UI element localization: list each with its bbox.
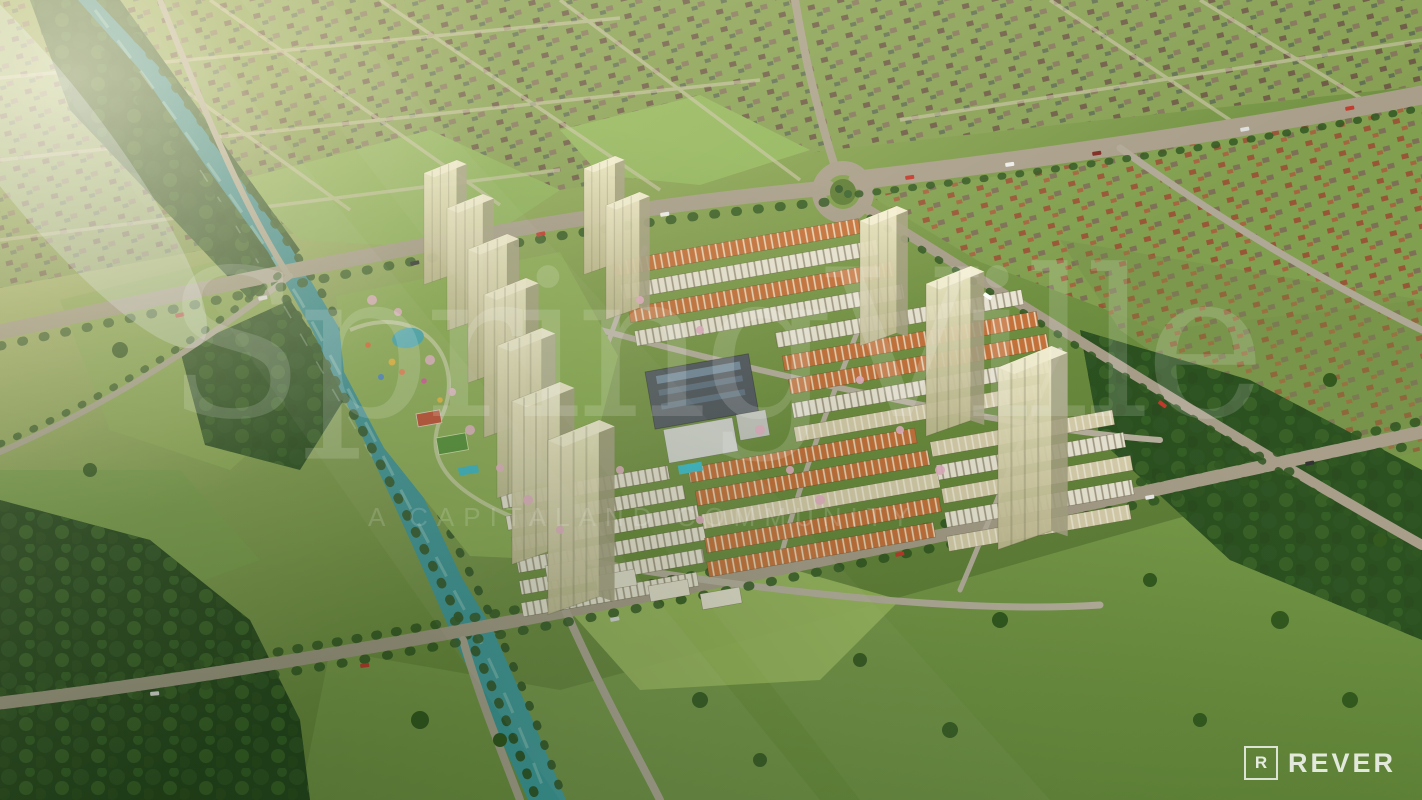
scene-canvas xyxy=(0,0,1422,800)
vignette xyxy=(0,0,1422,800)
aerial-masterplan-render: SpringVille A CAPITALAND COMMUNITY R REV… xyxy=(0,0,1422,800)
sunlight-atmosphere xyxy=(0,0,1422,800)
